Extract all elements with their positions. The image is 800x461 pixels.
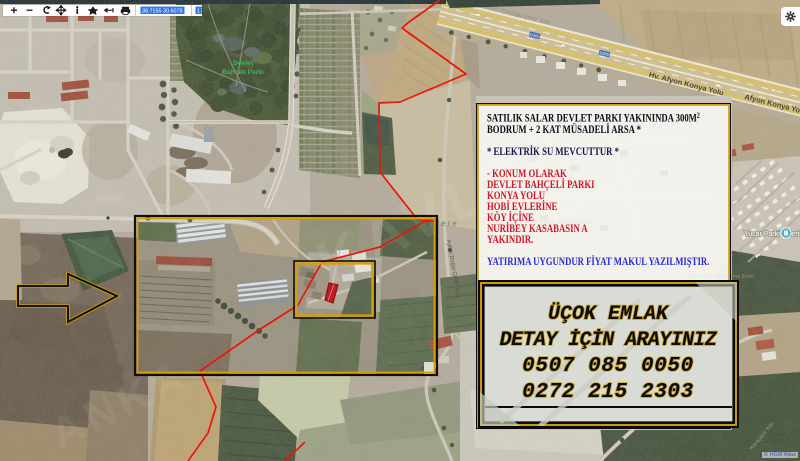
svg-text:ÜÇOK EMLAK: ÜÇOK EMLAK [548, 302, 670, 326]
svg-text:38.7155 30.6078: 38.7155 30.6078 [142, 9, 182, 15]
svg-text:0272 215 2303: 0272 215 2303 [522, 381, 694, 404]
svg-text:DETAY İÇİN ARAYINIZ: DETAY İÇİN ARAYINIZ [500, 328, 718, 352]
svg-text:17: 17 [197, 9, 202, 15]
svg-text:0507 085 0050: 0507 085 0050 [522, 355, 694, 378]
